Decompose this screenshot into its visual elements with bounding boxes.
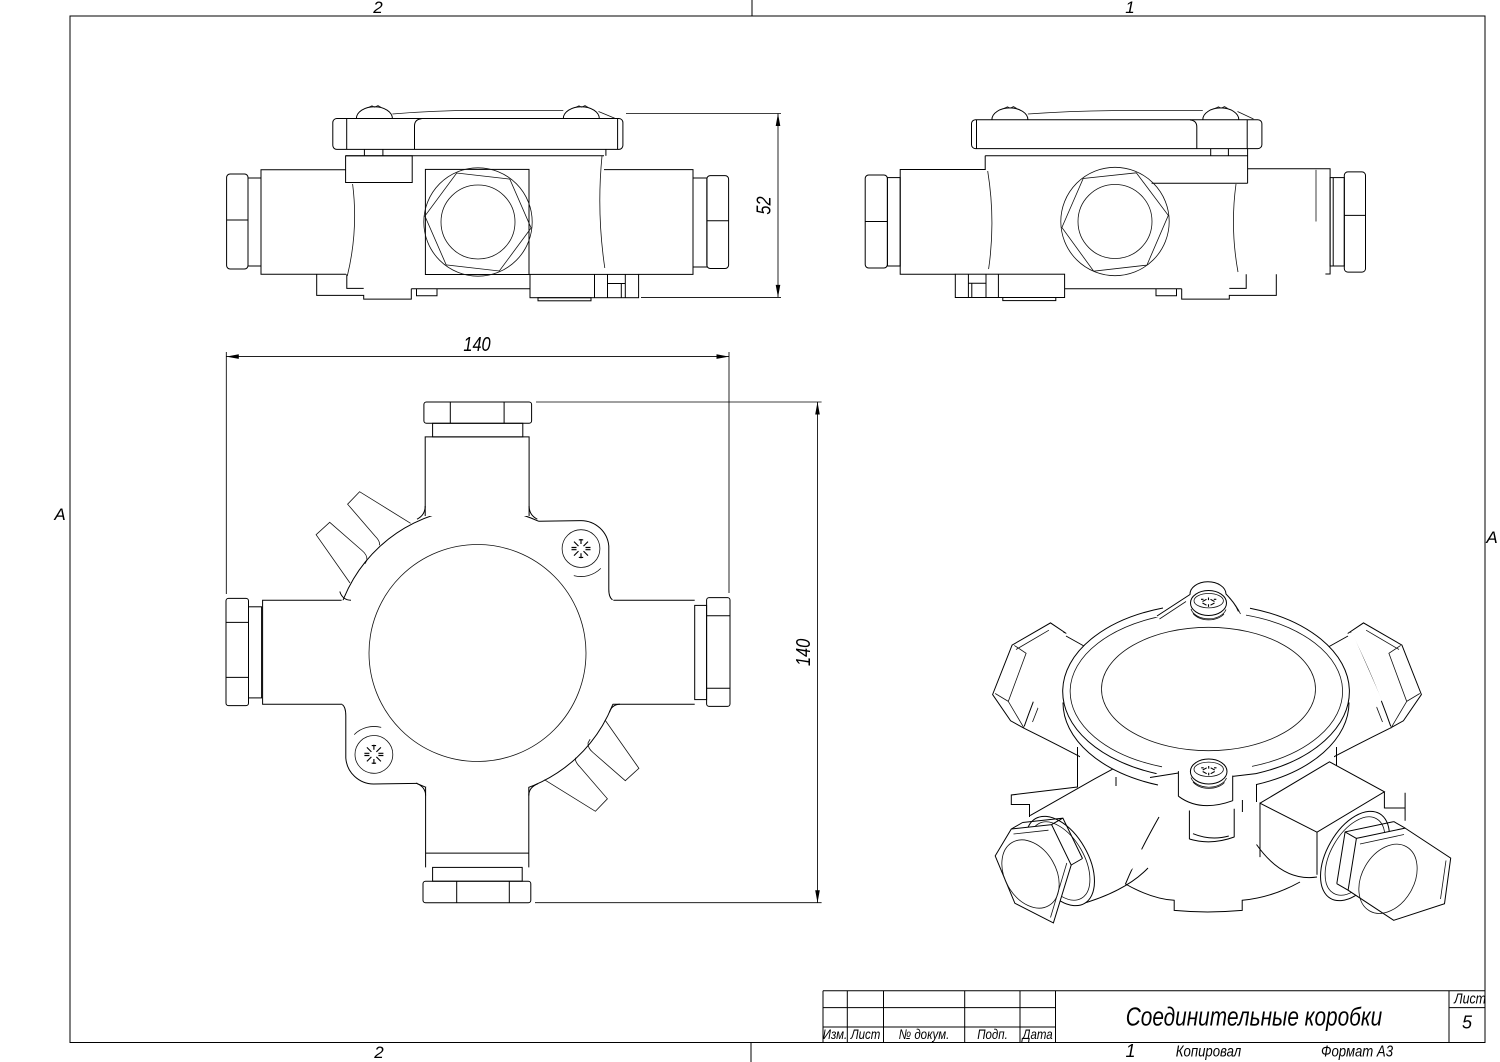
svg-text:Лист: Лист	[850, 1026, 881, 1042]
svg-text:Формат А3: Формат А3	[1321, 1044, 1393, 1061]
svg-text:№ докум.: № докум.	[899, 1026, 950, 1042]
svg-text:Изм.: Изм.	[823, 1026, 847, 1042]
svg-text:140: 140	[463, 332, 490, 355]
svg-text:Лист: Лист	[1453, 991, 1486, 1007]
svg-text:Соединительные коробки: Соединительные коробки	[1126, 1002, 1382, 1031]
svg-text:52: 52	[752, 196, 775, 214]
svg-text:140: 140	[791, 639, 814, 666]
svg-text:5: 5	[1462, 1013, 1473, 1033]
svg-text:Копировал: Копировал	[1176, 1044, 1241, 1061]
svg-text:Подп.: Подп.	[977, 1026, 1008, 1042]
svg-text:2: 2	[373, 1043, 384, 1062]
svg-text:1: 1	[1125, 0, 1134, 17]
svg-text:Дата: Дата	[1021, 1026, 1053, 1042]
svg-text:2: 2	[372, 0, 383, 17]
svg-text:А: А	[53, 505, 65, 524]
svg-text:1: 1	[1125, 1041, 1135, 1061]
svg-text:А: А	[1485, 528, 1497, 547]
